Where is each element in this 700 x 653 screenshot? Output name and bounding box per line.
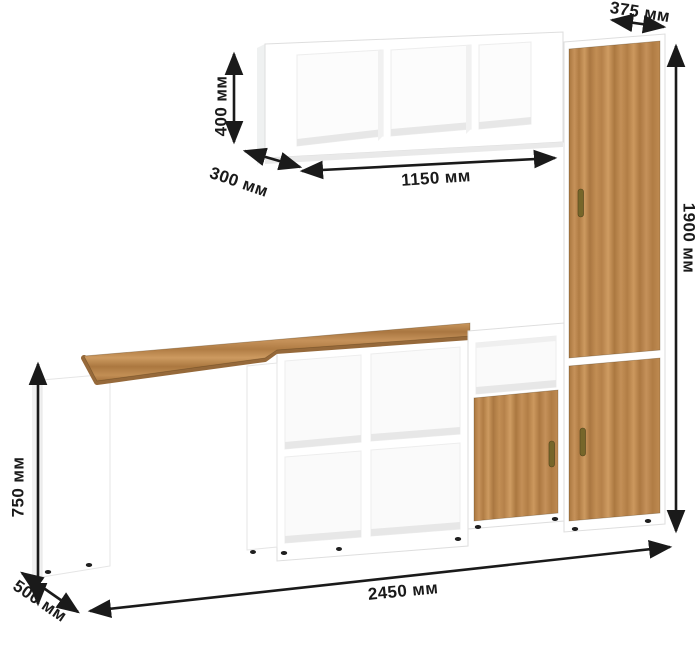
middle-cabinet-foot <box>475 525 481 529</box>
dim-label-shelf-width: 1150 мм <box>401 167 472 189</box>
wall-shelf <box>257 32 563 165</box>
wardrobe-door-bottom-handle <box>580 428 586 456</box>
middle-cabinet-foot <box>552 517 558 521</box>
cube-shelf-foot <box>455 537 461 541</box>
desk-foot <box>86 563 92 567</box>
wall-shelf-bay <box>479 42 531 129</box>
dim-label-wardrobe-height: 1900 мм <box>681 203 698 274</box>
middle-cabinet-door-handle <box>549 441 555 467</box>
cube-shelf-foot <box>281 551 287 555</box>
desk-foot <box>250 550 256 554</box>
cube-shelf-bay <box>285 355 361 449</box>
cube-shelf-bay <box>371 443 460 536</box>
wall-shelf-bay-shadow <box>378 50 383 141</box>
middle-cabinet <box>468 323 564 529</box>
middle-cabinet-door <box>474 390 558 521</box>
wall-shelf-bay-shadow <box>466 45 471 134</box>
wardrobe-foot <box>645 519 651 523</box>
dim-label-shelf-height: 400 мм <box>213 76 230 137</box>
furniture-dimension-diagram: 400 мм 300 мм 1150 мм 375 мм 1900 мм 750… <box>0 0 700 653</box>
desk-left-support <box>42 374 110 577</box>
desk-foot <box>45 570 51 574</box>
cube-shelf-bay <box>371 347 460 441</box>
cube-shelf <box>277 333 468 561</box>
furniture-scene <box>0 0 700 653</box>
cube-shelf-foot <box>336 547 342 551</box>
wardrobe-cabinet <box>564 34 665 532</box>
wall-shelf-side <box>257 44 265 165</box>
wardrobe-foot <box>572 527 578 531</box>
wardrobe-door-top-handle <box>578 189 584 217</box>
wall-shelf-bay <box>391 45 471 136</box>
dim-label-desk-height: 750 мм <box>10 457 27 518</box>
desk-right-support <box>247 363 277 550</box>
cube-shelf-bay <box>285 451 361 543</box>
